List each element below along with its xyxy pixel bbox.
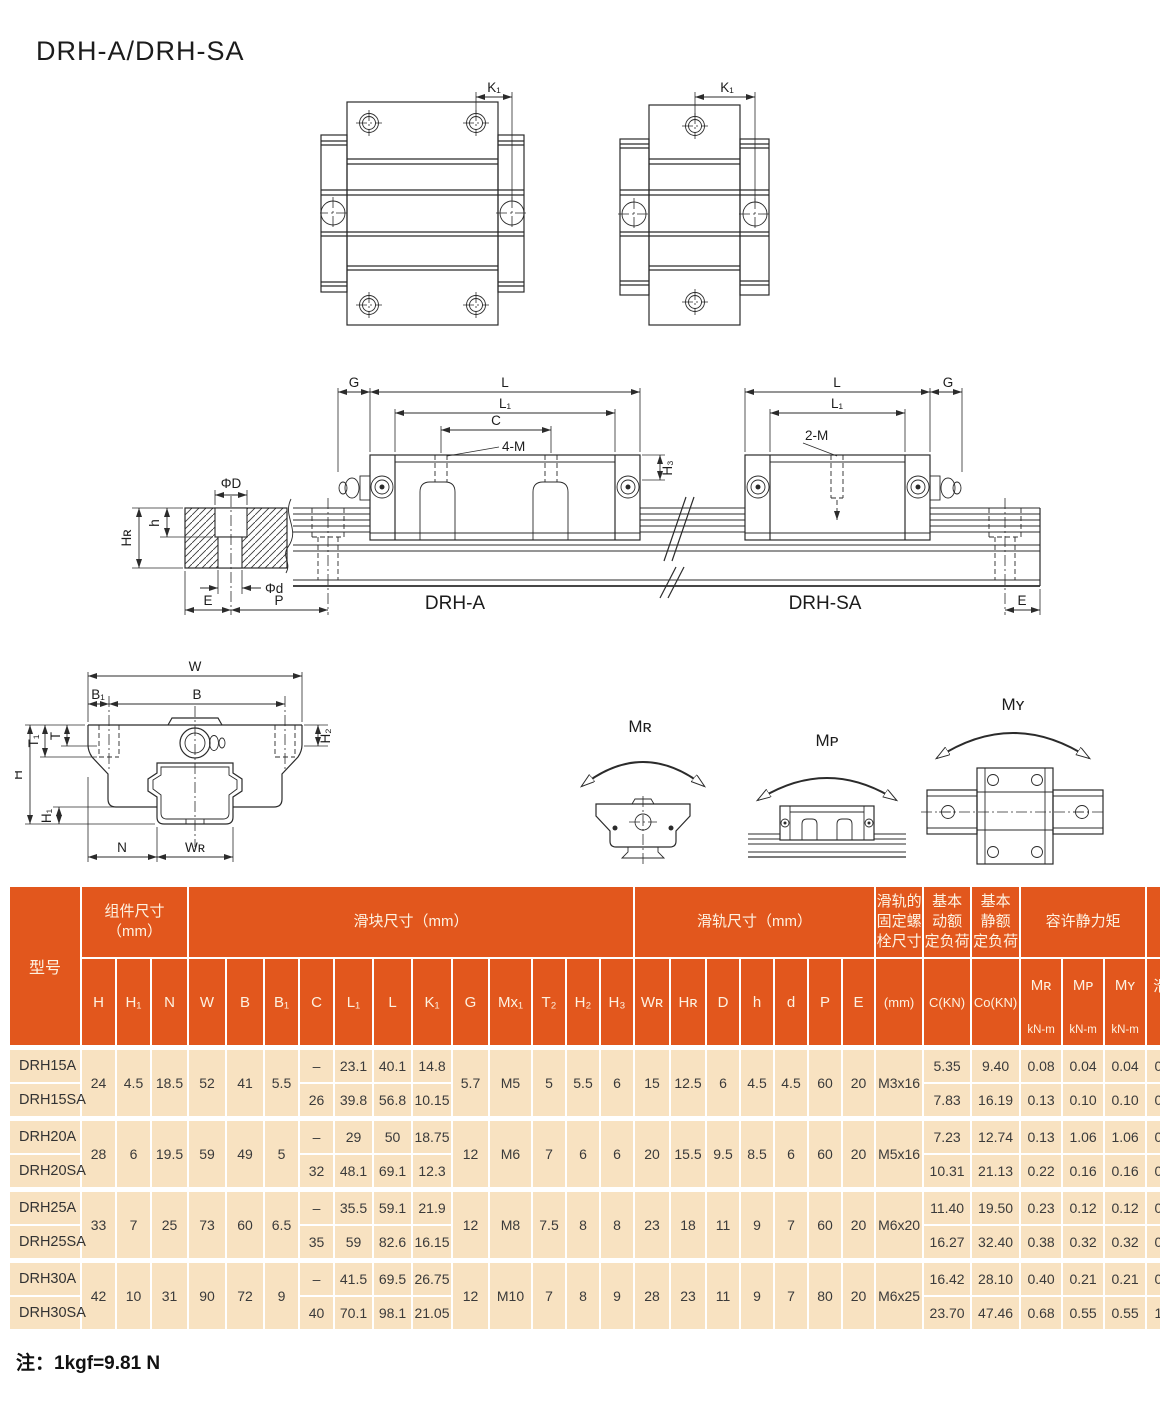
value-cell: 6: [601, 1047, 633, 1116]
value-cell: 12.5: [671, 1047, 705, 1116]
value-cell: 49: [227, 1118, 263, 1187]
column-header: C(KN): [924, 959, 970, 1045]
column-header: W: [189, 959, 225, 1045]
dim-b-label: B: [192, 687, 201, 702]
column-group-header: 容许静力矩: [1021, 887, 1145, 957]
drh-sa-label: DRH-SA: [789, 593, 862, 614]
value-cell: 0.21: [1105, 1260, 1145, 1295]
cross-section-drawing: W B₁ B H T₁ T H₂ H₁ N: [15, 642, 365, 887]
value-cell: 0.38: [1021, 1226, 1061, 1258]
value-cell: –: [300, 1118, 333, 1153]
rail: [293, 508, 1040, 580]
value-cell: 59.1: [374, 1189, 411, 1224]
value-cell: 16.15: [413, 1226, 451, 1258]
model-column-header: 型号: [10, 887, 80, 1045]
column-header: h: [741, 959, 773, 1045]
value-cell: 20: [843, 1189, 874, 1258]
value-cell: 0.32: [1105, 1226, 1145, 1258]
model-cell: DRH30SA: [10, 1297, 80, 1329]
page: DRH-A/DRH-SA: [0, 0, 1160, 1413]
value-cell: 69.1: [374, 1155, 411, 1187]
value-cell: 0.32: [1147, 1155, 1160, 1187]
dim-p-label: P: [274, 593, 283, 608]
value-cell: 14.8: [413, 1047, 451, 1082]
value-cell: 6: [117, 1118, 150, 1187]
value-cell: 7.23: [924, 1118, 970, 1153]
value-cell: 8.5: [741, 1118, 773, 1187]
value-cell: 31: [152, 1260, 187, 1329]
value-cell: 5.5: [567, 1047, 599, 1116]
value-cell: 6: [775, 1118, 807, 1187]
dim-k1-label: K₁: [487, 82, 501, 95]
value-cell: 19.5: [152, 1118, 187, 1187]
column-header: P: [809, 959, 841, 1045]
column-header: H₃: [601, 959, 633, 1045]
value-cell: 0.55: [1063, 1297, 1103, 1329]
value-cell: 7: [117, 1189, 150, 1258]
value-cell: M5: [490, 1047, 531, 1116]
value-cell: 32: [300, 1155, 333, 1187]
value-cell: 28: [635, 1260, 669, 1329]
column-group-header: 基本静额定负荷: [972, 887, 1019, 957]
column-header: K₁: [413, 959, 451, 1045]
block-drh-a: [339, 455, 640, 540]
dim-4m-label: 4-M: [502, 439, 525, 454]
mounting-holes: [321, 114, 524, 315]
dim-2m-label: 2-M: [805, 428, 828, 443]
value-cell: 0.21: [1063, 1260, 1103, 1295]
header-row-groups: 型号组件尺寸（mm）滑块尺寸（mm）滑轨尺寸（mm）滑轨的固定螺栓尺寸基本动额定…: [10, 887, 1160, 957]
value-cell: 0.04: [1063, 1047, 1103, 1082]
value-cell: M8: [490, 1189, 531, 1258]
page-title: DRH-A/DRH-SA: [36, 36, 245, 67]
value-cell: 4.5: [775, 1047, 807, 1116]
dim-w-label: W: [189, 659, 202, 674]
value-cell: 4.5: [117, 1047, 150, 1116]
mr-sketch: [596, 796, 690, 866]
table-row: DRH15A244.518.552415.5–23.140.114.85.7M5…: [10, 1047, 1160, 1082]
value-cell: 7: [775, 1189, 807, 1258]
value-cell: 98.1: [374, 1297, 411, 1329]
value-cell: 8: [567, 1189, 599, 1258]
table-row: DRH20A28619.559495–295018.7512M67662015.…: [10, 1118, 1160, 1153]
value-cell: 35: [300, 1226, 333, 1258]
spec-table: 型号组件尺寸（mm）滑块尺寸（mm）滑轨尺寸（mm）滑轨的固定螺栓尺寸基本动额定…: [8, 885, 1160, 1331]
column-header: d: [775, 959, 807, 1045]
value-cell: 0.16: [1063, 1155, 1103, 1187]
value-cell: 0.32: [1063, 1226, 1103, 1258]
column-group-header: 组件尺寸（mm）: [82, 887, 187, 957]
value-cell: 41: [227, 1047, 263, 1116]
value-cell: 20: [843, 1118, 874, 1187]
value-cell: 9: [741, 1260, 773, 1329]
dim-h3-label: H₃: [660, 460, 675, 475]
dim-wr-label: Wʀ: [185, 840, 206, 855]
value-cell: 20: [635, 1118, 669, 1187]
mr-label: Mʀ: [628, 717, 651, 736]
value-cell: 32.40: [972, 1226, 1019, 1258]
value-cell: 23: [635, 1189, 669, 1258]
table-row: DRH25A3372573606.5–35.559.121.912M87.588…: [10, 1189, 1160, 1224]
value-cell: 56.8: [374, 1084, 411, 1116]
value-cell: 42: [82, 1260, 115, 1329]
value-cell: 18.5: [152, 1047, 187, 1116]
value-cell: 6: [707, 1047, 739, 1116]
value-cell: 5: [265, 1118, 298, 1187]
value-cell: 35.5: [335, 1189, 372, 1224]
value-cell: 20: [843, 1047, 874, 1116]
top-view-drh-sa-drawing: K₁: [615, 82, 785, 349]
dim-l-label: L: [501, 375, 509, 390]
dim-hr-label: Hʀ: [119, 529, 134, 547]
value-cell: 0.16: [1105, 1155, 1145, 1187]
dim-g-label: G: [349, 375, 360, 390]
value-cell: 21.05: [413, 1297, 451, 1329]
my-label: Mʏ: [1002, 695, 1025, 714]
column-header: Co(KN): [972, 959, 1019, 1045]
value-cell: 18: [671, 1189, 705, 1258]
value-cell: 60: [809, 1118, 841, 1187]
dim-e-label: E: [1017, 593, 1026, 608]
value-cell: 40.1: [374, 1047, 411, 1082]
model-cell: DRH20A: [10, 1118, 80, 1153]
value-cell: 9: [265, 1260, 298, 1329]
value-cell: 50: [374, 1118, 411, 1153]
value-cell: 4.5: [741, 1047, 773, 1116]
dim-l1-label: L₁: [831, 396, 844, 411]
column-header: MʏkN-m: [1105, 959, 1145, 1045]
value-cell: 21.9: [413, 1189, 451, 1224]
value-cell: 72: [227, 1260, 263, 1329]
value-cell: 0.21: [1147, 1084, 1160, 1116]
value-cell: 18.75: [413, 1118, 451, 1153]
mp-label: Mᴘ: [815, 731, 838, 750]
value-cell: 0.68: [1021, 1297, 1061, 1329]
value-cell: 7.5: [533, 1189, 565, 1258]
column-header: L₁: [335, 959, 372, 1045]
model-cell: DRH15A: [10, 1047, 80, 1082]
value-cell: 0.35: [1147, 1189, 1160, 1224]
value-cell: M6x25: [876, 1260, 922, 1329]
value-cell: 21.13: [972, 1155, 1019, 1187]
value-cell: 15.5: [671, 1118, 705, 1187]
value-cell: 0.10: [1063, 1084, 1103, 1116]
value-cell: 7: [533, 1118, 565, 1187]
column-header: Mx₁: [490, 959, 531, 1045]
value-cell: 7: [533, 1260, 565, 1329]
column-header: MᴘkN-m: [1063, 959, 1103, 1045]
value-cell: 9: [741, 1189, 773, 1258]
top-view-drh-a-drawing: K₁: [320, 82, 570, 349]
value-cell: 70.1: [335, 1297, 372, 1329]
column-header: T₂: [533, 959, 565, 1045]
value-cell: 5.7: [453, 1047, 488, 1116]
value-cell: 11.40: [924, 1189, 970, 1224]
value-cell: 40: [300, 1297, 333, 1329]
column-header: D: [707, 959, 739, 1045]
value-cell: –: [300, 1189, 333, 1224]
value-cell: 0.10: [1105, 1084, 1145, 1116]
value-cell: 41.5: [335, 1260, 372, 1295]
dim-h-label: H: [15, 770, 25, 780]
column-header: MʀkN-m: [1021, 959, 1061, 1045]
model-cell: DRH30A: [10, 1260, 80, 1295]
moment-mp-diagram: Mᴘ: [742, 716, 912, 876]
column-header: Hʀ: [671, 959, 705, 1045]
value-cell: 0.04: [1105, 1047, 1145, 1082]
column-header: E: [843, 959, 874, 1045]
dim-t-label: T: [48, 732, 63, 740]
value-cell: 28.10: [972, 1260, 1019, 1295]
value-cell: 23: [671, 1260, 705, 1329]
value-cell: 24: [82, 1047, 115, 1116]
value-cell: 73: [189, 1189, 225, 1258]
value-cell: 0.62: [1147, 1260, 1160, 1295]
value-cell: 12: [453, 1260, 488, 1329]
dim-h2-label: H₂: [318, 729, 333, 744]
drh-a-label: DRH-A: [425, 593, 485, 614]
value-cell: 60: [227, 1189, 263, 1258]
dim-e-label: E: [203, 593, 212, 608]
dim-h-label: h: [147, 519, 162, 527]
column-header: (mm): [876, 959, 922, 1045]
column-header: B: [227, 959, 263, 1045]
value-cell: –: [300, 1260, 333, 1295]
mp-sketch: [748, 806, 906, 857]
value-cell: 48.1: [335, 1155, 372, 1187]
value-cell: 90: [189, 1260, 225, 1329]
value-cell: 6.5: [265, 1189, 298, 1258]
column-group-header: 滑块尺寸（mm）: [189, 887, 633, 957]
value-cell: 9.40: [972, 1047, 1019, 1082]
value-cell: 25: [152, 1189, 187, 1258]
value-cell: 59: [335, 1226, 372, 1258]
block-drh-sa: [745, 455, 961, 540]
value-cell: 16.19: [972, 1084, 1019, 1116]
value-cell: 20: [843, 1260, 874, 1329]
value-cell: 0.12: [1105, 1189, 1145, 1224]
footnote: 注：1kgf=9.81 N: [16, 1348, 160, 1375]
value-cell: 12: [453, 1189, 488, 1258]
value-cell: 52: [189, 1047, 225, 1116]
value-cell: 0.22: [1021, 1155, 1061, 1187]
value-cell: 19.50: [972, 1189, 1019, 1224]
dim-h1-label: H₁: [39, 808, 54, 823]
side-view-drawing: ΦD h Hʀ Φd E P: [115, 368, 1070, 635]
value-cell: 8: [601, 1189, 633, 1258]
value-cell: 29: [335, 1118, 372, 1153]
value-cell: 15: [635, 1047, 669, 1116]
value-cell: 1.04: [1147, 1297, 1160, 1329]
value-cell: 39.8: [335, 1084, 372, 1116]
moment-my-diagram: Mʏ: [915, 686, 1110, 876]
spec-table-element: 型号组件尺寸（mm）滑块尺寸（mm）滑轨尺寸（mm）滑轨的固定螺栓尺寸基本动额定…: [8, 885, 1160, 1331]
value-cell: 5.5: [265, 1047, 298, 1116]
column-group-header: 滑轨尺寸（mm）: [635, 887, 874, 957]
model-cell: DRH25SA: [10, 1226, 80, 1258]
value-cell: 0.08: [1021, 1047, 1061, 1082]
model-cell: DRH25A: [10, 1189, 80, 1224]
value-cell: M6: [490, 1118, 531, 1187]
value-cell: 10.15: [413, 1084, 451, 1116]
value-cell: 16.27: [924, 1226, 970, 1258]
value-cell: 0.23: [1021, 1189, 1061, 1224]
value-cell: 5.35: [924, 1047, 970, 1082]
dim-n-label: N: [117, 840, 127, 855]
dim-g-label: G: [943, 375, 954, 390]
value-cell: 6: [601, 1118, 633, 1187]
value-cell: 8: [567, 1260, 599, 1329]
model-cell: DRH15SA: [10, 1084, 80, 1116]
value-cell: 10.31: [924, 1155, 970, 1187]
value-cell: 0.13: [1021, 1118, 1061, 1153]
value-cell: 23.1: [335, 1047, 372, 1082]
value-cell: 26.75: [413, 1260, 451, 1295]
value-cell: M3x16: [876, 1047, 922, 1116]
value-cell: 5: [533, 1047, 565, 1116]
dim-l1-label: L₁: [499, 396, 512, 411]
column-header: H₂: [567, 959, 599, 1045]
column-header: H₁: [117, 959, 150, 1045]
column-header: H: [82, 959, 115, 1045]
dim-c-label: C: [491, 413, 501, 428]
value-cell: M10: [490, 1260, 531, 1329]
value-cell: 9.5: [707, 1118, 739, 1187]
value-cell: 6: [567, 1118, 599, 1187]
value-cell: 0.12: [1147, 1047, 1160, 1082]
value-cell: 0.12: [1063, 1189, 1103, 1224]
value-cell: 16.42: [924, 1260, 970, 1295]
column-header: Wʀ: [635, 959, 669, 1045]
value-cell: 7: [775, 1260, 807, 1329]
value-cell: 0.19: [1147, 1118, 1160, 1153]
column-group-header: 滑轨的固定螺栓尺寸: [876, 887, 922, 957]
value-cell: 10: [117, 1260, 150, 1329]
column-header: C: [300, 959, 333, 1045]
value-cell: 60: [809, 1047, 841, 1116]
value-cell: 0.59: [1147, 1226, 1160, 1258]
value-cell: 1.06: [1105, 1118, 1145, 1153]
moment-mr-diagram: Mʀ: [568, 700, 718, 875]
value-cell: 11: [707, 1260, 739, 1329]
value-cell: 33: [82, 1189, 115, 1258]
value-cell: 9: [601, 1260, 633, 1329]
column-group-header: 基本动额定负荷: [924, 887, 970, 957]
value-cell: 47.46: [972, 1297, 1019, 1329]
value-cell: 59: [189, 1118, 225, 1187]
value-cell: 7.83: [924, 1084, 970, 1116]
dim-b1-label: B₁: [91, 687, 105, 702]
value-cell: M5x16: [876, 1118, 922, 1187]
column-header: N: [152, 959, 187, 1045]
dim-phiD-label: ΦD: [221, 476, 242, 491]
value-cell: 69.5: [374, 1260, 411, 1295]
value-cell: 11: [707, 1189, 739, 1258]
column-group-header: 重量: [1147, 887, 1160, 957]
value-cell: 0.13: [1021, 1084, 1061, 1116]
column-header: G: [453, 959, 488, 1045]
value-cell: 12.74: [972, 1118, 1019, 1153]
value-cell: 26: [300, 1084, 333, 1116]
model-cell: DRH20SA: [10, 1155, 80, 1187]
table-row: DRH30A42103190729–41.569.526.7512M107892…: [10, 1260, 1160, 1295]
value-cell: 12: [453, 1118, 488, 1187]
column-header: L: [374, 959, 411, 1045]
value-cell: 23.70: [924, 1297, 970, 1329]
value-cell: 0.40: [1021, 1260, 1061, 1295]
header-row-columns: HH₁NWBB₁CL₁LK₁GMx₁T₂H₂H₃WʀHʀDhdPE(mm)C(K…: [10, 959, 1160, 1045]
value-cell: 60: [809, 1189, 841, 1258]
value-cell: 28: [82, 1118, 115, 1187]
value-cell: M6x20: [876, 1189, 922, 1258]
column-header: B₁: [265, 959, 298, 1045]
value-cell: 0.55: [1105, 1297, 1145, 1329]
dim-t1-label: T₁: [26, 734, 41, 747]
value-cell: 1.06: [1063, 1118, 1103, 1153]
value-cell: 82.6: [374, 1226, 411, 1258]
dim-l-label: L: [833, 375, 841, 390]
dim-k1-label: K₁: [720, 82, 734, 95]
value-cell: –: [300, 1047, 333, 1082]
value-cell: 12.3: [413, 1155, 451, 1187]
my-sketch: [921, 768, 1105, 864]
column-header: 滑块kg: [1147, 959, 1160, 1045]
value-cell: 80: [809, 1260, 841, 1329]
